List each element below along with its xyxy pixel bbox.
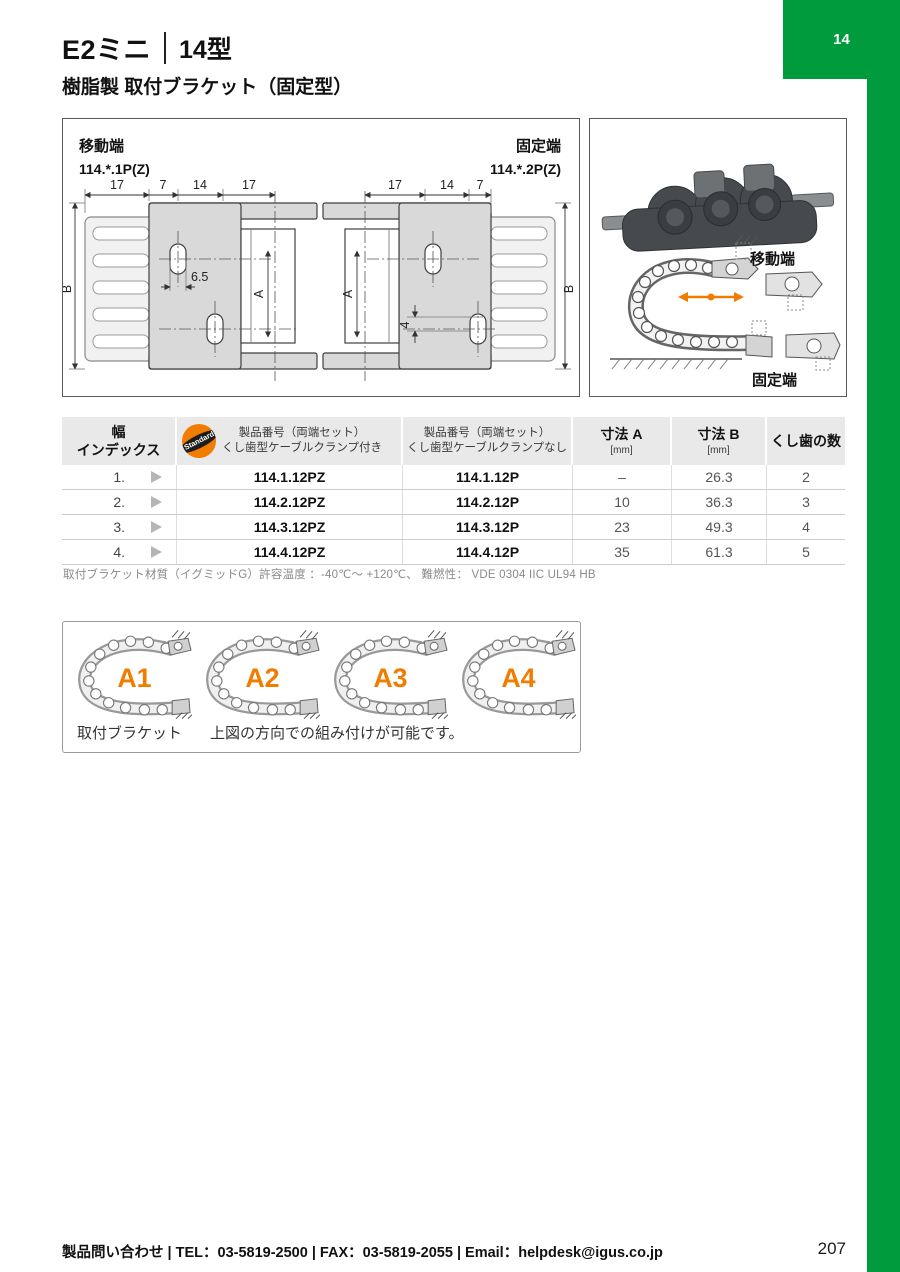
dim-17-right: 17 [388, 178, 402, 192]
technical-drawing-box: 移動端 114.*.1P(Z) 固定端 114.*.2P(Z) [62, 118, 580, 397]
title-divider [164, 32, 166, 64]
table-row: 4. 114.4.12PZ 114.4.12P 35 61.3 5 [62, 540, 845, 565]
illustration-fixed-end-label: 固定端 [752, 371, 797, 389]
orientation-a2-label: A2 [245, 663, 279, 693]
header-part-without-clamp: 製品番号（両端セット） くし歯型ケーブルクランプなし [403, 417, 573, 465]
page-subtitle: 樹脂製 取付ブラケット（固定型） [62, 72, 352, 99]
moving-end-label: 移動端 [79, 137, 124, 155]
spec-table-header: 幅 インデックス Standard 製品番号（両端セット） くし歯型ケーブルクラ… [62, 417, 845, 465]
chapter-side-strip [867, 0, 900, 1272]
dim-offset-4: 4 [398, 321, 412, 328]
header-dim-a: 寸法 A [mm] [573, 417, 672, 465]
dim-b-left: B [63, 285, 74, 293]
series-title: E2ミニ [62, 28, 151, 67]
row-triangle-icon [151, 546, 162, 558]
dim-14-right: 14 [440, 178, 454, 192]
orientation-caption: 取付ブラケット 上図の方向での組み付けが可能です。 [77, 722, 464, 743]
dim-a-right: A [341, 289, 355, 298]
spec-table: 幅 インデックス Standard 製品番号（両端セット） くし歯型ケーブルクラ… [62, 417, 845, 565]
dim-hole-6-5: 6.5 [191, 270, 208, 284]
chapter-tab: 14 [783, 0, 900, 79]
model-title: 14型 [179, 30, 232, 66]
dim-b-right: B [562, 285, 576, 293]
technical-drawing: 移動端 114.*.1P(Z) 固定端 114.*.2P(Z) [63, 119, 577, 394]
moving-end-part-number: 114.*.1P(Z) [79, 161, 150, 177]
product-photo-and-mounting-diagram: 移動端 [590, 119, 845, 394]
chapter-number: 14 [833, 31, 850, 48]
mounting-orientation-box: A1 A2 A3 A4 取付ブラケット 上図の方向での組み付けが可能です。 [62, 621, 581, 753]
header-teeth-count: くし歯の数 [767, 417, 845, 465]
travel-arrow [678, 292, 744, 302]
photo-illustration-box: 移動端 [589, 118, 847, 397]
orientation-diagrams: A1 A2 A3 A4 [63, 622, 580, 721]
fixed-end-part-number: 114.*.2P(Z) [490, 161, 561, 177]
orientation-a3-diagram: A3 [325, 627, 448, 721]
dim-14-left: 14 [193, 178, 207, 192]
orientation-a1-label: A1 [117, 663, 151, 693]
table-row: 3. 114.3.12PZ 114.3.12P 23 49.3 4 [62, 515, 845, 540]
standard-badge-icon: Standard [182, 424, 216, 458]
fixed-end-label: 固定端 [516, 137, 561, 155]
row-triangle-icon [151, 496, 162, 508]
orientation-a2-diagram: A2 [197, 627, 320, 721]
illustration-moving-end-label: 移動端 [750, 250, 795, 268]
row-triangle-icon [151, 521, 162, 533]
material-note: 取付ブラケット材質（イグミッドG）許容温度 ：-40℃～ +120℃、 難燃性：… [63, 566, 596, 582]
dim-7-left: 7 [160, 178, 167, 192]
dim-7-right: 7 [477, 178, 484, 192]
page-title: E2ミニ 14型 [62, 28, 232, 67]
page-number: 207 [786, 1239, 846, 1259]
product-photo [600, 161, 836, 253]
orientation-a4-diagram: A4 [453, 627, 576, 721]
footer-contact: 製品問い合わせ | TEL：03-5819-2500 | FAX：03-5819… [62, 1241, 663, 1262]
header-width-index: 幅 インデックス [62, 417, 177, 465]
catalog-page: 14 E2ミニ 14型 樹脂製 取付ブラケット（固定型） 移動端 114.*.1… [0, 0, 900, 1272]
table-row: 1. 114.1.12PZ 114.1.12P – 26.3 2 [62, 465, 845, 490]
orientation-a3-label: A3 [373, 663, 407, 693]
orientation-a4-label: A4 [501, 663, 535, 693]
table-row: 2. 114.2.12PZ 114.2.12P 10 36.3 3 [62, 490, 845, 515]
header-dim-b: 寸法 B [mm] [672, 417, 767, 465]
dim-17-left1: 17 [110, 178, 124, 192]
mounting-diagram: 移動端 [610, 235, 840, 389]
dim-17-left2: 17 [242, 178, 256, 192]
dim-a-left: A [252, 289, 266, 298]
row-triangle-icon [151, 471, 162, 483]
header-part-with-clamp: Standard 製品番号（両端セット） くし歯型ケーブルクランプ付き [177, 417, 403, 465]
orientation-a1-diagram: A1 [69, 627, 192, 721]
